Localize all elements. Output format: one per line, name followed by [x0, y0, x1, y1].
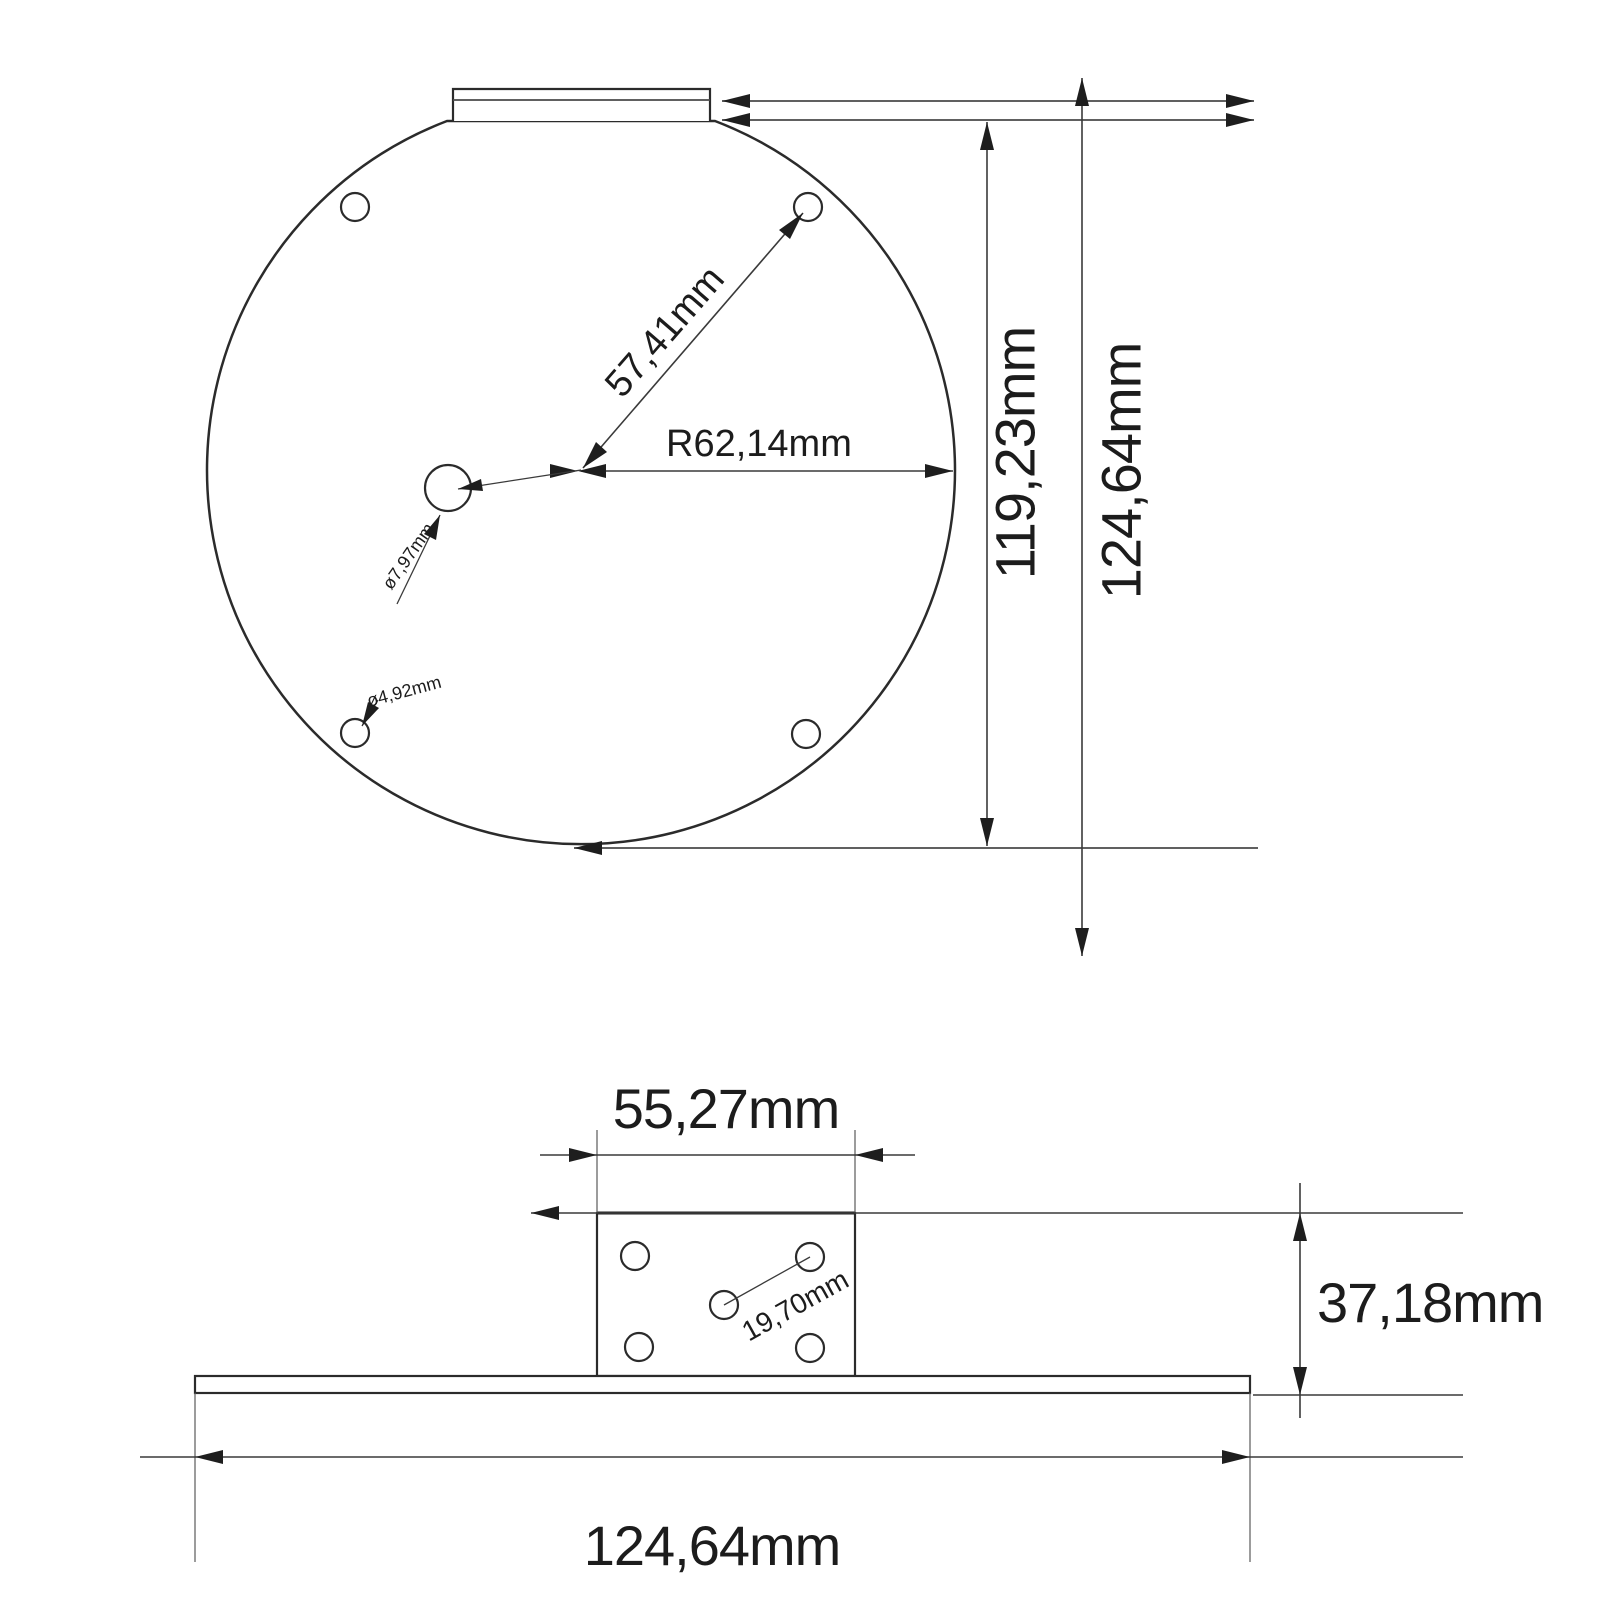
- corner-hole-bottom-left: [341, 719, 369, 747]
- block-hole-bottom-right: [796, 1334, 824, 1362]
- side-view: 19,70mm 55,27mm 37,18mm 124,64mm: [140, 1077, 1543, 1577]
- arrow-up-icon: [1075, 78, 1089, 106]
- arrow-left-icon: [195, 1450, 223, 1464]
- base-plate: [195, 1376, 1250, 1393]
- block-height-dimension-label: 37,18mm: [1317, 1271, 1543, 1334]
- corner-hole-top-left: [341, 193, 369, 221]
- inner-height-dimension-label: 119,23mm: [984, 327, 1047, 579]
- arrow-left-icon: [855, 1148, 883, 1162]
- corner-hole-bottom-right: [792, 720, 820, 748]
- base-width-dimension-label: 124,64mm: [584, 1514, 841, 1577]
- plate-outline: [207, 121, 955, 844]
- arrow-down-icon: [980, 818, 994, 846]
- arrow-up-icon: [1293, 1213, 1307, 1241]
- technical-drawing: 119,23mm 124,64mm R62,14mm 57,41mm ø7,97…: [0, 0, 1600, 1602]
- radius-dimension-label: R62,14mm: [666, 423, 852, 465]
- overall-height-dimension-label: 124,64mm: [1090, 343, 1153, 600]
- top-view: 119,23mm 124,64mm R62,14mm 57,41mm ø7,97…: [207, 78, 1258, 956]
- arrow-right-icon: [1226, 94, 1254, 108]
- technical-drawing-page: 119,23mm 124,64mm R62,14mm 57,41mm ø7,97…: [0, 0, 1600, 1602]
- arrow-left-icon: [722, 94, 750, 108]
- arrow-right-icon: [1222, 1450, 1250, 1464]
- arrow-up-icon: [980, 122, 994, 150]
- arrow-down-icon: [1075, 928, 1089, 956]
- block-width-dimension-label: 55,27mm: [613, 1077, 839, 1140]
- mounting-tab: [453, 89, 710, 121]
- arrow-down-icon: [1293, 1367, 1307, 1395]
- block-hole-top-left: [621, 1242, 649, 1270]
- arrow-right-icon: [1226, 113, 1254, 127]
- arrow-right-icon: [569, 1148, 597, 1162]
- arrow-left-icon: [531, 1206, 559, 1220]
- block-hole-bottom-left: [625, 1333, 653, 1361]
